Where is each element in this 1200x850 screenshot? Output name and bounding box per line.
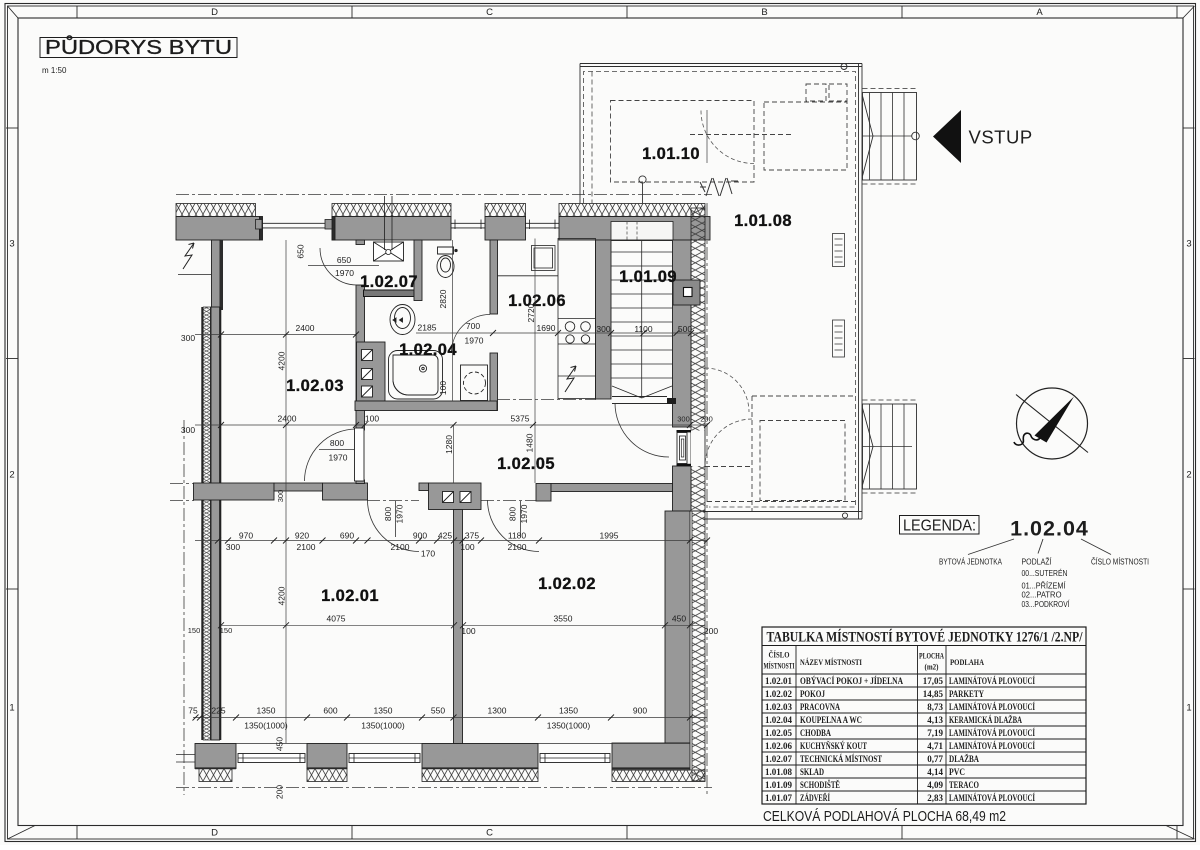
svg-text:1.02.07: 1.02.07 (360, 273, 418, 291)
svg-text:1280: 1280 (444, 435, 454, 454)
svg-text:2400: 2400 (296, 323, 315, 333)
svg-text:900: 900 (633, 706, 647, 716)
svg-text:TECHNICKÁ MÍSTNOST: TECHNICKÁ MÍSTNOST (800, 754, 882, 764)
svg-text:75: 75 (188, 706, 198, 716)
svg-text:A: A (1036, 7, 1043, 18)
svg-text:800: 800 (330, 438, 344, 448)
svg-text:1100: 1100 (634, 324, 653, 334)
svg-text:800: 800 (383, 507, 393, 521)
svg-text:17,05: 17,05 (923, 676, 944, 686)
svg-text:100: 100 (365, 414, 379, 424)
svg-text:LAMINÁTOVÁ PLOVOUCÍ: LAMINÁTOVÁ PLOVOUCÍ (949, 728, 1035, 738)
svg-text:1.02.07: 1.02.07 (765, 754, 793, 764)
svg-text:450: 450 (275, 737, 285, 751)
svg-text:2: 2 (9, 470, 14, 481)
svg-text:1.02.03: 1.02.03 (286, 377, 344, 395)
svg-text:1.02.03: 1.02.03 (765, 702, 793, 712)
svg-text:450: 450 (672, 614, 686, 624)
svg-text:CELKOVÁ PODLAHOVÁ PLOCHA 68,49: CELKOVÁ PODLAHOVÁ PLOCHA 68,49 m2 (763, 808, 1006, 825)
svg-text:2400: 2400 (278, 414, 297, 424)
svg-text:1.02.06: 1.02.06 (765, 741, 793, 751)
svg-text:00...SUTERÉN: 00...SUTERÉN (1022, 569, 1068, 578)
svg-text:0,77: 0,77 (927, 754, 943, 764)
svg-text:1970: 1970 (329, 453, 348, 463)
svg-text:LEGENDA:: LEGENDA: (903, 518, 976, 535)
svg-text:LAMINÁTOVÁ PLOVOUCÍ: LAMINÁTOVÁ PLOVOUCÍ (949, 793, 1035, 803)
svg-text:MÍSTNOSTI: MÍSTNOSTI (764, 661, 795, 671)
svg-text:1350(1000): 1350(1000) (361, 721, 405, 731)
svg-text:POKOJ: POKOJ (800, 689, 825, 699)
svg-text:SKLAD: SKLAD (800, 767, 824, 777)
svg-text:600: 600 (323, 706, 337, 716)
svg-text:VSTUP: VSTUP (969, 127, 1033, 148)
svg-text:2,83: 2,83 (927, 793, 943, 803)
svg-text:4,09: 4,09 (927, 780, 943, 790)
svg-text:1: 1 (9, 703, 14, 714)
svg-text:TABULKA MÍSTNOSTÍ BYTOVÉ JEDNO: TABULKA MÍSTNOSTÍ BYTOVÉ JEDNOTKY 1276/1… (767, 629, 1084, 646)
svg-text:150: 150 (188, 626, 201, 635)
svg-text:1.01.09: 1.01.09 (619, 268, 677, 286)
svg-text:1970: 1970 (335, 268, 354, 278)
svg-text:650: 650 (296, 244, 306, 258)
svg-text:170: 170 (421, 549, 435, 559)
svg-text:PODLAŽÍ: PODLAŽÍ (1022, 558, 1053, 567)
svg-text:1995: 1995 (600, 531, 619, 541)
svg-text:C: C (486, 7, 493, 18)
svg-text:300: 300 (677, 415, 690, 424)
svg-text:KOUPELNA A WC: KOUPELNA A WC (800, 715, 862, 725)
svg-text:1.02.05: 1.02.05 (497, 455, 555, 473)
svg-text:1.02.05: 1.02.05 (765, 728, 793, 738)
svg-text:300: 300 (181, 425, 195, 435)
svg-text:m 1:50: m 1:50 (42, 66, 67, 75)
svg-text:SCHODIŠTĚ: SCHODIŠTĚ (800, 780, 840, 790)
svg-text:B: B (761, 7, 767, 18)
svg-text:2185: 2185 (418, 323, 437, 333)
svg-text:PLOCHA: PLOCHA (919, 652, 944, 661)
svg-text:7,19: 7,19 (927, 728, 943, 738)
svg-text:500: 500 (678, 324, 692, 334)
svg-text:8,73: 8,73 (927, 702, 943, 712)
svg-text:1350: 1350 (374, 706, 393, 716)
svg-text:1690: 1690 (537, 323, 556, 333)
svg-text:1350: 1350 (257, 706, 276, 716)
svg-text:1300: 1300 (488, 706, 507, 716)
svg-text:LAMINÁTOVÁ PLOVOUCÍ: LAMINÁTOVÁ PLOVOUCÍ (949, 702, 1035, 712)
svg-text:1.01.08: 1.01.08 (734, 212, 792, 230)
svg-text:KERAMICKÁ DLAŽBA: KERAMICKÁ DLAŽBA (949, 715, 1022, 725)
svg-text:TERACO: TERACO (949, 780, 979, 790)
svg-text:03...PODKROVÍ: 03...PODKROVÍ (1022, 600, 1071, 609)
svg-text:1180: 1180 (508, 531, 527, 541)
svg-text:1480: 1480 (525, 433, 535, 452)
svg-text:300: 300 (181, 333, 195, 343)
svg-text:1350: 1350 (559, 706, 578, 716)
svg-text:1970: 1970 (395, 504, 405, 523)
svg-text:550: 550 (431, 706, 445, 716)
svg-text:4075: 4075 (327, 614, 346, 624)
svg-text:DLAŽBA: DLAŽBA (949, 754, 979, 764)
svg-text:OBÝVACÍ POKOJ + JÍDELNA: OBÝVACÍ POKOJ + JÍDELNA (800, 676, 903, 686)
svg-text:LAMINÁTOVÁ PLOVOUCÍ: LAMINÁTOVÁ PLOVOUCÍ (949, 741, 1035, 751)
svg-text:1: 1 (1186, 703, 1191, 714)
svg-text:425: 425 (438, 531, 452, 541)
svg-text:1.01.09: 1.01.09 (765, 780, 793, 790)
svg-text:ZÁDVEŘÍ: ZÁDVEŘÍ (800, 793, 830, 803)
svg-text:100: 100 (461, 626, 475, 636)
svg-text:1.02.01: 1.02.01 (321, 587, 379, 605)
svg-text:1350(1000): 1350(1000) (244, 721, 288, 731)
svg-text:ČÍSLO: ČÍSLO (769, 650, 790, 660)
svg-text:LAMINÁTOVÁ PLOVOUCÍ: LAMINÁTOVÁ PLOVOUCÍ (949, 676, 1035, 686)
svg-text:KUCHYŇSKÝ KOUT: KUCHYŇSKÝ KOUT (800, 741, 867, 751)
svg-text:100: 100 (438, 381, 448, 395)
svg-text:3: 3 (9, 239, 14, 250)
svg-text:375: 375 (465, 531, 479, 541)
svg-text:14,85: 14,85 (923, 689, 944, 699)
svg-text:4,13: 4,13 (927, 715, 943, 725)
svg-text:2: 2 (1186, 470, 1191, 481)
svg-text:C: C (486, 828, 493, 839)
svg-text:1.01.08: 1.01.08 (765, 767, 793, 777)
svg-text:PŮDORYS BYTU: PŮDORYS BYTU (45, 35, 232, 59)
svg-text:1.02.01: 1.02.01 (765, 676, 793, 686)
svg-text:PVC: PVC (949, 767, 965, 777)
svg-text:690: 690 (340, 531, 354, 541)
svg-text:650: 650 (337, 255, 351, 265)
svg-text:800: 800 (508, 507, 518, 521)
svg-text:1.02.02: 1.02.02 (538, 575, 596, 593)
svg-text:4200: 4200 (277, 351, 287, 370)
svg-text:PODLAHA: PODLAHA (950, 658, 984, 667)
svg-text:1.01.07: 1.01.07 (765, 793, 793, 803)
svg-text:02...PATRO: 02...PATRO (1022, 591, 1062, 600)
svg-text:2820: 2820 (438, 289, 448, 308)
svg-text:200: 200 (700, 415, 713, 424)
svg-text:CHODBA: CHODBA (800, 728, 831, 738)
svg-text:1.02.04: 1.02.04 (765, 715, 793, 725)
svg-text:300: 300 (276, 490, 285, 503)
svg-text:200: 200 (275, 785, 285, 799)
svg-text:01...PŘÍZEMÍ: 01...PŘÍZEMÍ (1022, 582, 1067, 591)
svg-text:970: 970 (239, 531, 253, 541)
svg-text:3550: 3550 (554, 614, 573, 624)
svg-text:4,71: 4,71 (927, 741, 943, 751)
svg-text:300: 300 (226, 542, 240, 552)
svg-text:1.02.04: 1.02.04 (1010, 517, 1089, 541)
svg-text:700: 700 (466, 321, 480, 331)
svg-text:4,14: 4,14 (927, 767, 943, 777)
svg-text:D: D (211, 828, 218, 839)
svg-text:2100: 2100 (508, 542, 527, 552)
svg-text:5375: 5375 (511, 414, 530, 424)
svg-text:(m2): (m2) (925, 663, 939, 672)
svg-text:1350(1000): 1350(1000) (547, 721, 591, 731)
svg-text:1.02.04: 1.02.04 (399, 341, 457, 359)
svg-text:1970: 1970 (465, 336, 484, 346)
svg-text:D: D (211, 7, 218, 18)
svg-text:ČÍSLO MÍSTNOSTI: ČÍSLO MÍSTNOSTI (1091, 558, 1149, 567)
svg-text:100: 100 (460, 542, 474, 552)
svg-text:BYTOVÁ JEDNOTKA: BYTOVÁ JEDNOTKA (939, 558, 1003, 567)
svg-text:PRACOVNA: PRACOVNA (800, 702, 840, 712)
svg-text:920: 920 (295, 531, 309, 541)
svg-text:150: 150 (220, 626, 233, 635)
svg-text:225: 225 (211, 706, 225, 716)
svg-text:2100: 2100 (297, 542, 316, 552)
svg-text:3: 3 (1186, 239, 1191, 250)
svg-text:2720: 2720 (526, 303, 536, 322)
svg-text:4200: 4200 (277, 586, 287, 605)
svg-text:PARKETY: PARKETY (949, 689, 984, 699)
svg-text:2100: 2100 (391, 542, 410, 552)
svg-text:900: 900 (413, 531, 427, 541)
svg-text:1.02.02: 1.02.02 (765, 689, 793, 699)
svg-text:NÁZEV MÍSTNOSTI: NÁZEV MÍSTNOSTI (800, 657, 862, 667)
svg-text:200: 200 (704, 626, 718, 636)
svg-text:1.01.10: 1.01.10 (642, 145, 700, 163)
svg-text:1.02.06: 1.02.06 (508, 292, 566, 310)
svg-text:300: 300 (596, 324, 610, 334)
